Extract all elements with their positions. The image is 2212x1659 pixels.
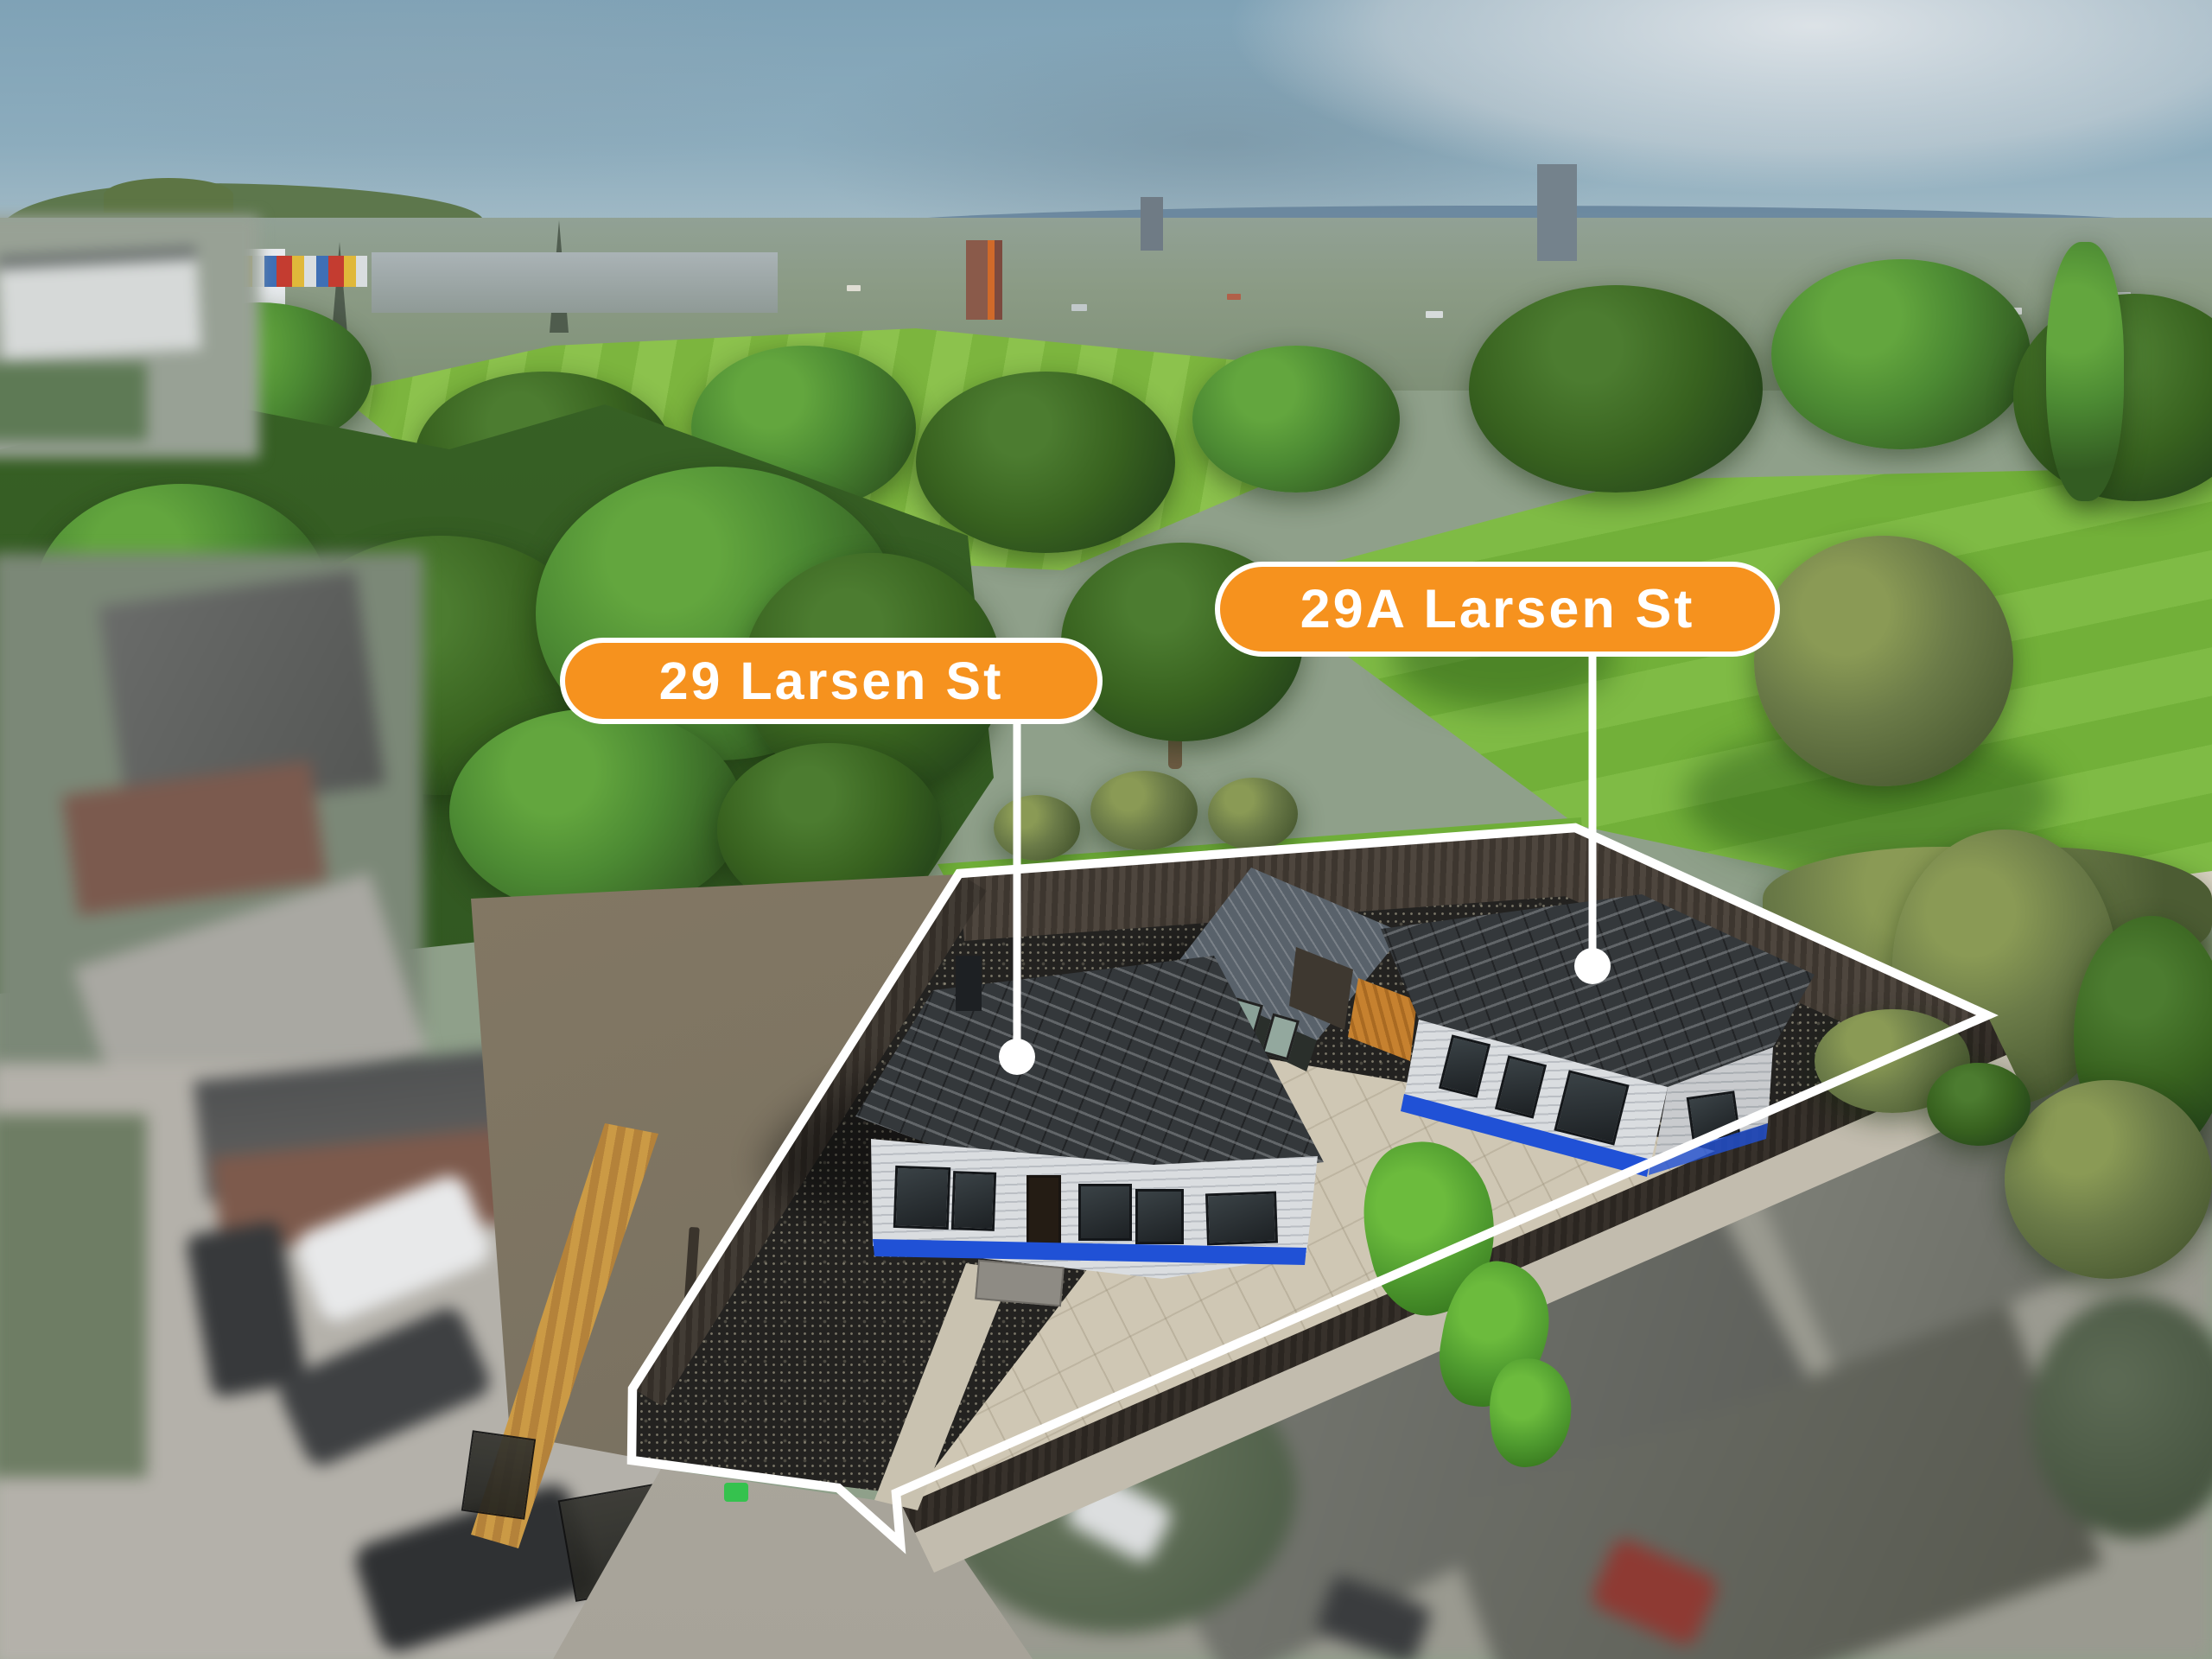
- address-marker-pill-29: 29 Larsen St: [560, 638, 1103, 724]
- highrise-building: [1537, 164, 1577, 261]
- address-marker-pill-29a: 29A Larsen St: [1215, 562, 1780, 657]
- tree: [1469, 285, 1763, 493]
- aerial-property-photo: 29 Larsen St 29A Larsen St: [0, 0, 2212, 1659]
- factory-buildings: [372, 252, 778, 313]
- yucca-plants: [1208, 778, 1298, 850]
- blurred-school-building: [0, 216, 259, 458]
- tree: [916, 372, 1175, 553]
- marker-label-29: 29 Larsen St: [659, 651, 1004, 711]
- tree: [449, 709, 743, 916]
- specimen-tree: [1754, 536, 2013, 786]
- midrise-building: [1141, 197, 1163, 251]
- green-marker-object: [724, 1483, 748, 1502]
- volcano-cone: [104, 178, 233, 213]
- house-29-chimney: [956, 956, 982, 1011]
- orange-striped-building: [966, 240, 1002, 320]
- marker-label-29a: 29A Larsen St: [1300, 578, 1695, 640]
- distant-roof: [1071, 304, 1087, 311]
- shrubs: [1927, 1063, 2031, 1146]
- window: [1205, 1192, 1278, 1246]
- tree: [2005, 1080, 2212, 1279]
- yucca-plants: [994, 795, 1080, 861]
- poplar-trees: [2046, 242, 2124, 501]
- front-steps: [975, 1260, 1065, 1307]
- blurred-neighbor-house-left: [0, 553, 423, 1106]
- window: [1135, 1189, 1184, 1244]
- distant-roof: [847, 285, 861, 291]
- window: [1078, 1184, 1132, 1241]
- distant-roof: [1426, 311, 1443, 318]
- window: [893, 1166, 950, 1230]
- tree: [1771, 259, 2031, 449]
- temp-fence-panel: [461, 1430, 536, 1519]
- distant-roof: [1227, 294, 1241, 300]
- window: [951, 1171, 996, 1231]
- yucca-plants: [1090, 771, 1198, 850]
- tree: [1192, 346, 1400, 493]
